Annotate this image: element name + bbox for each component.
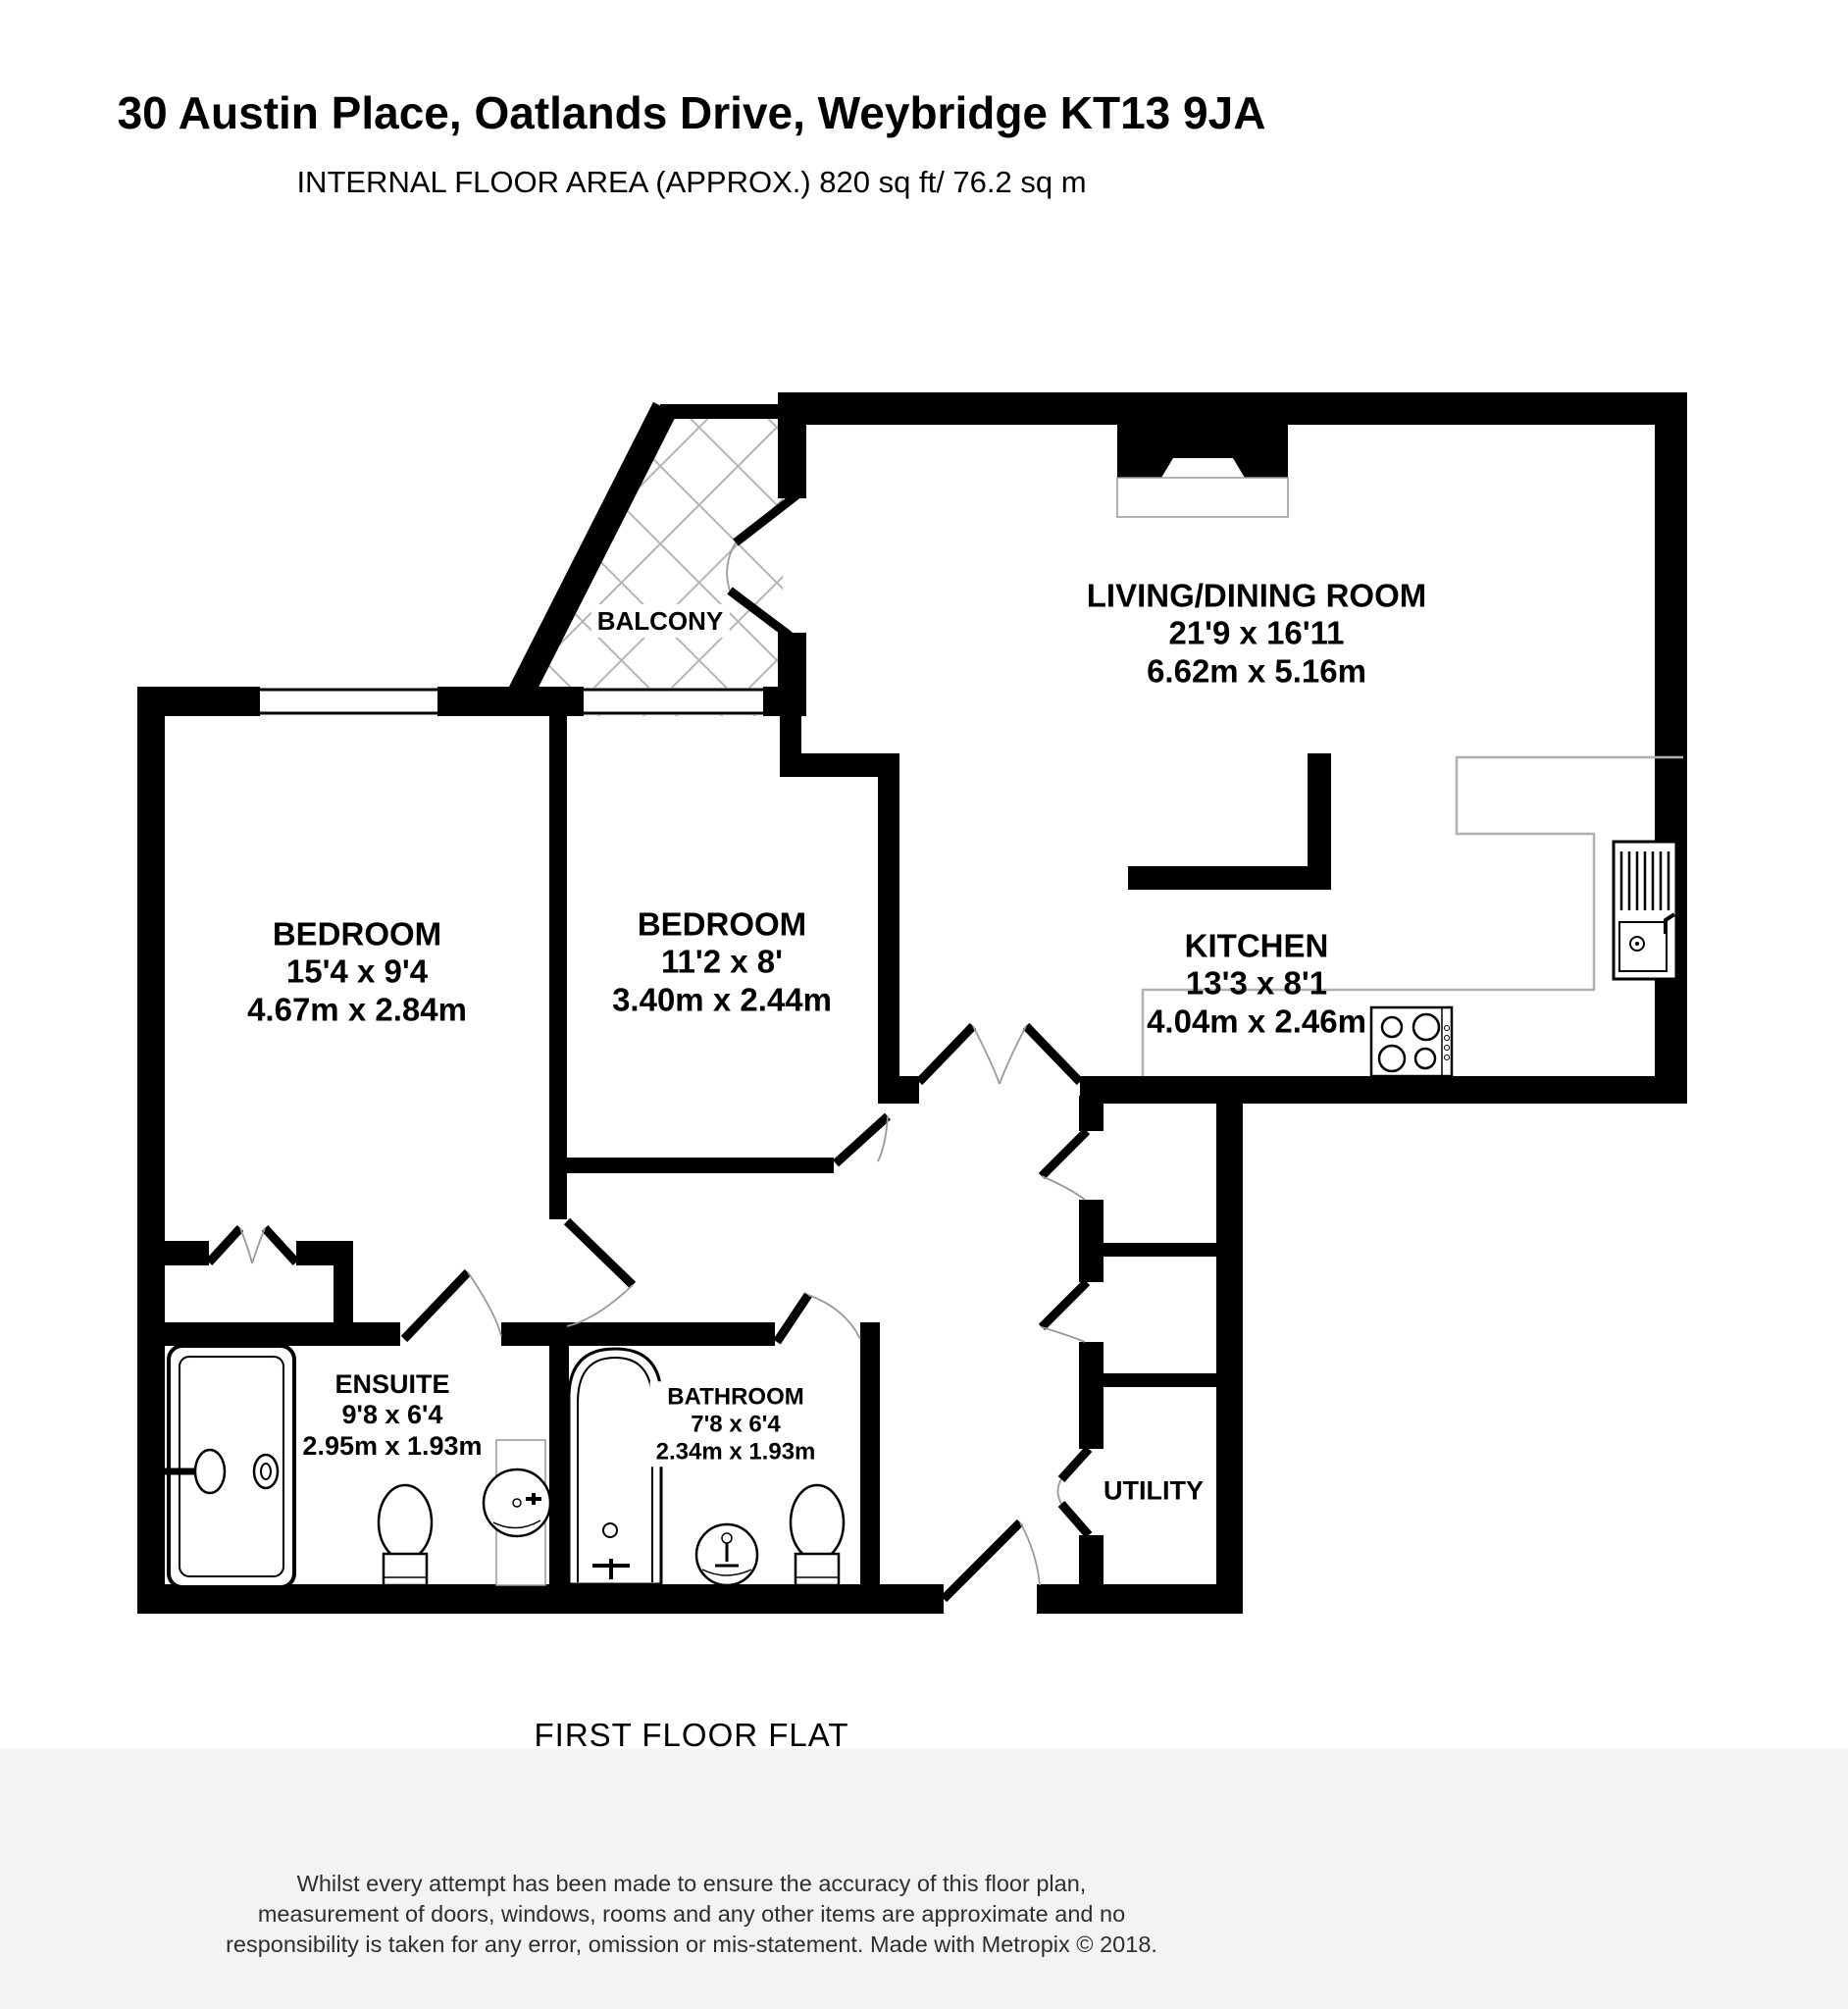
wall-living-top xyxy=(780,392,1687,425)
label-utility: UTILITY xyxy=(1098,1473,1209,1508)
wardrobe-door-arc-2 xyxy=(252,1228,265,1263)
utility-bifold-arc xyxy=(1058,1479,1062,1504)
disclaimer-line: measurement of doors, windows, rooms and… xyxy=(0,1899,1383,1930)
balcony-top-wall xyxy=(660,404,784,419)
bedroom1-door-leaf xyxy=(567,1221,633,1285)
bathroom-sink xyxy=(696,1524,757,1585)
living-door-arc-1 xyxy=(973,1026,1000,1084)
floor-label: FIRST FLOOR FLAT xyxy=(0,1717,1383,1754)
shower xyxy=(147,1346,294,1587)
wall-kitchen-divider-h xyxy=(1128,866,1331,890)
wall-bed1-top-b xyxy=(437,687,584,716)
label-living-dining: LIVING/DINING ROOM 21'9 x 16'11 6.62m x … xyxy=(1081,576,1433,693)
utility-bifold-leaf-2 xyxy=(1061,1504,1089,1535)
floorplan-page: 30 Austin Place, Oatlands Drive, Weybrid… xyxy=(0,0,1848,2009)
wall-bed1-top-a xyxy=(137,687,260,716)
label-bathroom: BATHROOM 7'8 x 6'4 2.34m x 1.93m xyxy=(650,1381,822,1467)
cupboard-b-door-leaf xyxy=(1042,1282,1087,1327)
balcony-corner-block-upper xyxy=(778,392,806,498)
ensuite-sink xyxy=(484,1440,550,1585)
wall-bathroom-top xyxy=(567,1322,775,1346)
disclaimer: Whilst every attempt has been made to en… xyxy=(0,1869,1383,1960)
wall-bathroom-right xyxy=(860,1322,880,1614)
cupboard-b-door-arc xyxy=(1042,1327,1085,1342)
disclaimer-line: Whilst every attempt has been made to en… xyxy=(0,1869,1383,1899)
living-double-door-leaf-2 xyxy=(1026,1026,1080,1082)
wall-hall-stub-left xyxy=(878,1076,919,1104)
kitchen-sink xyxy=(1614,842,1676,979)
wall-wardrobe-b xyxy=(296,1241,353,1265)
wall-bed2-jog xyxy=(780,753,899,777)
ensuite-toilet xyxy=(379,1485,432,1585)
bedroom2-window xyxy=(584,688,763,715)
wall-ensuite-top-a xyxy=(137,1322,400,1346)
wall-cupboard-divider-1 xyxy=(1104,1243,1216,1257)
disclaimer-line: responsibility is taken for any error, o… xyxy=(0,1930,1383,1960)
label-ensuite: ENSUITE 9'8 x 6'4 2.95m x 1.93m xyxy=(296,1367,488,1464)
bathroom-door-leaf xyxy=(777,1295,808,1342)
wall-bedroom-divider xyxy=(549,716,567,1219)
ensuite-door-arc xyxy=(468,1272,501,1336)
wall-cupboard-c xyxy=(1079,1342,1104,1449)
bathroom-door-arc xyxy=(808,1295,860,1339)
wall-bottom-right xyxy=(1037,1584,1243,1614)
wall-wardrobe-a xyxy=(137,1241,209,1265)
bathroom-toilet xyxy=(791,1485,844,1585)
wardrobe-door-leaf-1 xyxy=(209,1228,240,1262)
label-bedroom2: BEDROOM 11'2 x 8' 3.40m x 2.44m xyxy=(606,904,838,1021)
front-door-arc xyxy=(1020,1522,1040,1585)
label-kitchen: KITCHEN 13'3 x 8'1 4.04m x 2.46m xyxy=(1141,926,1372,1043)
wall-cupboard-d xyxy=(1079,1535,1104,1586)
label-balcony: BALCONY xyxy=(591,604,730,638)
wall-wardrobe-side xyxy=(334,1265,353,1322)
wall-ensuite-bath-divider xyxy=(549,1322,569,1614)
wall-right xyxy=(1655,392,1687,1104)
wall-bed2-right xyxy=(878,777,899,1084)
label-bedroom1: BEDROOM 15'4 x 9'4 4.67m x 2.84m xyxy=(241,914,473,1031)
ensuite-door-leaf xyxy=(404,1272,468,1339)
balcony-area xyxy=(506,404,784,716)
wardrobe-door-arc-1 xyxy=(240,1228,252,1263)
bedroom1-door-arc xyxy=(567,1285,633,1326)
wall-cupboard-b xyxy=(1079,1200,1104,1282)
utility-bifold-leaf-1 xyxy=(1061,1449,1089,1479)
bedroom1-window xyxy=(260,688,437,715)
wall-kitchen-bottom xyxy=(1216,1076,1687,1104)
front-door-leaf xyxy=(944,1522,1020,1599)
living-door-arc-2 xyxy=(1000,1026,1026,1084)
wall-utility-top xyxy=(1104,1373,1216,1387)
wall-utility-right xyxy=(1216,1076,1243,1614)
cupboard-a-door-leaf xyxy=(1042,1131,1087,1176)
living-double-door-leaf-1 xyxy=(919,1026,973,1082)
wall-cupboard-a xyxy=(1079,1096,1104,1131)
cupboard-a-door-arc xyxy=(1042,1176,1085,1200)
wall-bed2-bottom xyxy=(549,1158,834,1173)
bathtub xyxy=(569,1349,661,1584)
hob xyxy=(1371,1007,1452,1076)
wardrobe-door-leaf-2 xyxy=(265,1228,296,1262)
